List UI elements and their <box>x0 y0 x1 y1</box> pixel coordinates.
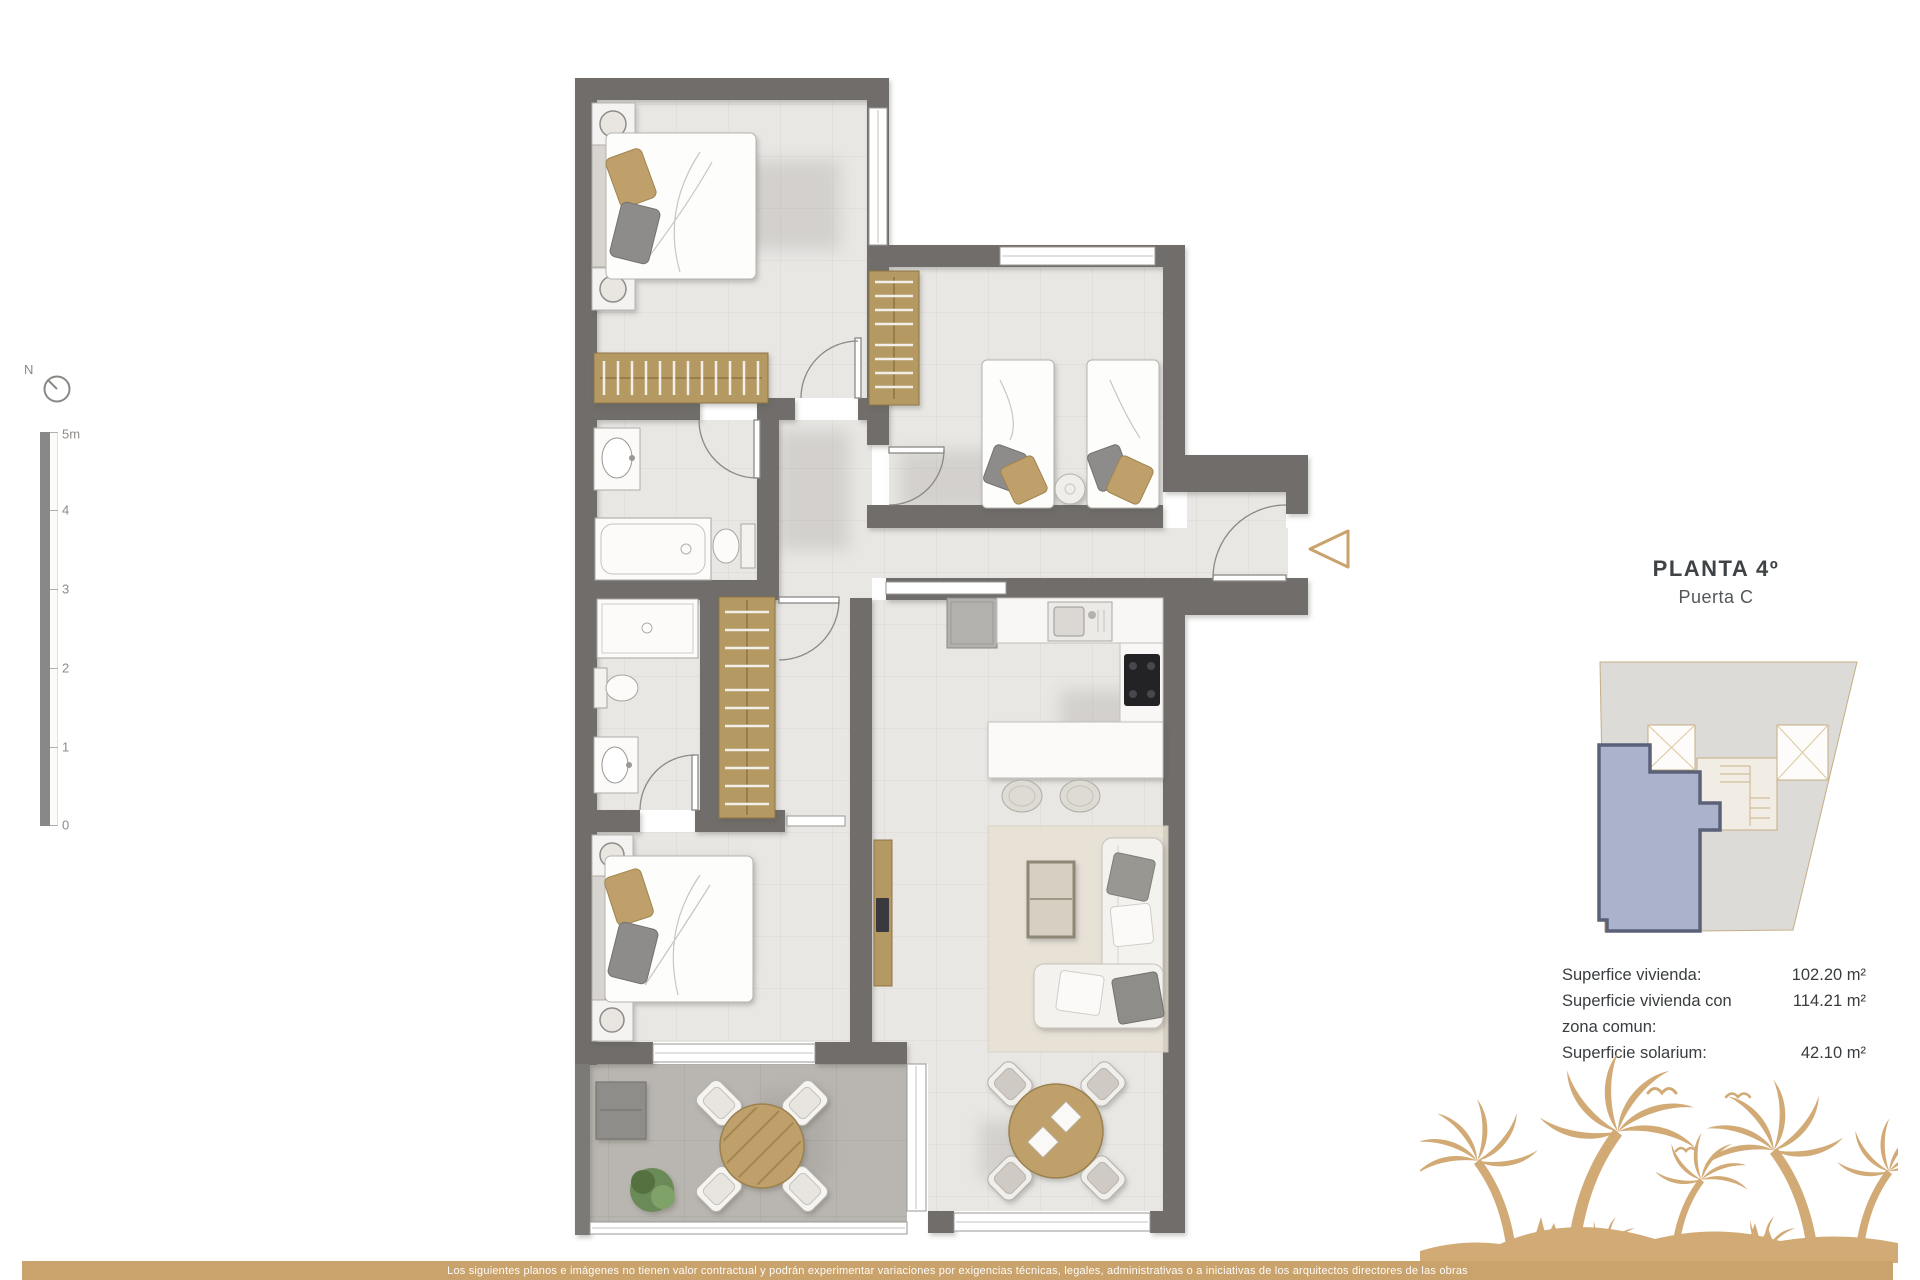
scale-label-0: 0 <box>62 818 69 833</box>
scale-bar: 5m 4 3 2 1 0 <box>40 432 110 826</box>
surface-value: 114.21 m² <box>1762 988 1866 1014</box>
disclaimer-bar: Los siguientes planos e imágenes no tien… <box>22 1261 1893 1280</box>
scale-bar-rule <box>40 432 50 826</box>
north-indicator: N <box>22 360 92 420</box>
scale-label-4: 4 <box>62 503 69 518</box>
cushion <box>1055 970 1104 1016</box>
palm-decoration <box>1420 1055 1898 1263</box>
cushion <box>1106 852 1156 902</box>
bathtub <box>595 518 711 580</box>
surface-value: 102.20 m² <box>1762 962 1866 988</box>
round-nightstand <box>1055 474 1085 504</box>
scale-bar-strip <box>50 432 58 826</box>
tv-icon <box>876 898 889 932</box>
page-subtitle: Puerta C <box>1566 587 1866 608</box>
headboard <box>592 145 606 267</box>
scale-label-3: 3 <box>62 582 69 597</box>
outdoor-table <box>720 1104 804 1188</box>
toilet-icon <box>741 524 755 568</box>
floorplan-page: N 5m 4 3 2 1 0 <box>0 0 1920 1280</box>
north-label: N <box>24 362 33 377</box>
tv-sideboard <box>874 840 892 986</box>
surface-table: Superfice vivienda: 102.20 m² Superficie… <box>1562 962 1866 1066</box>
key-plan-drawing <box>1590 648 1870 940</box>
kitchen-island <box>988 722 1163 778</box>
stool <box>1060 780 1100 812</box>
fridge <box>947 598 997 648</box>
toilet-icon <box>594 668 607 708</box>
entrance-arrow-icon <box>1310 531 1348 567</box>
floor-plan-drawing <box>540 60 1400 1260</box>
cushion <box>1110 903 1154 947</box>
lamp-icon <box>600 1008 624 1032</box>
title-block: PLANTA 4º Puerta C <box>1566 556 1866 608</box>
key-plan <box>1590 648 1870 940</box>
shower-tray <box>597 599 698 658</box>
headboard <box>592 876 605 1000</box>
surface-row: Superfice vivienda: 102.20 m² <box>1562 962 1866 988</box>
dining-table <box>1009 1084 1103 1178</box>
lamp-icon <box>600 276 626 302</box>
page-title: PLANTA 4º <box>1566 556 1866 582</box>
surface-row: Superficie vivienda con zona comun: 114.… <box>1562 988 1866 1040</box>
floor-plan <box>540 60 1400 1260</box>
corridor-closet <box>719 597 775 818</box>
compass-icon <box>36 368 80 412</box>
cooktop <box>1124 654 1160 706</box>
disclaimer-text: Los siguientes planos e imágenes no tien… <box>447 1265 1468 1277</box>
surface-label: Superfice vivienda: <box>1562 962 1762 988</box>
living-room-furniture <box>988 826 1168 1052</box>
cushion <box>1111 971 1164 1024</box>
bedroom1-furniture <box>592 103 768 403</box>
scale-label-1: 1 <box>62 740 69 755</box>
surface-label: Superficie vivienda con zona comun: <box>1562 988 1762 1040</box>
palm-trees-icon <box>1420 1055 1898 1263</box>
stool <box>1002 780 1042 812</box>
scale-label-5m: 5m <box>62 427 80 442</box>
scale-label-2: 2 <box>62 661 69 676</box>
